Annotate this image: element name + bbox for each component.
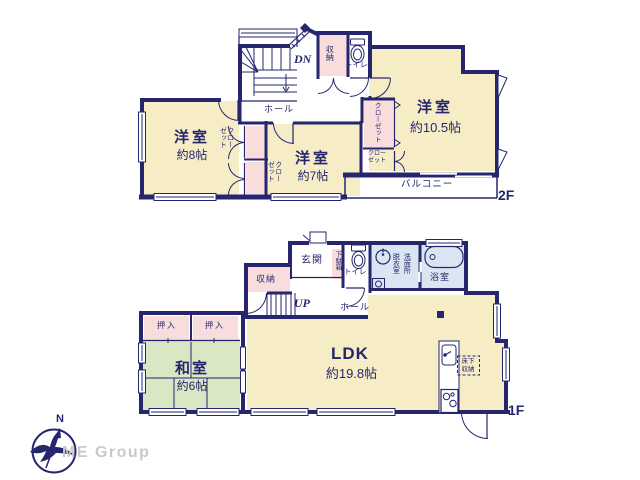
oshiire-a-label: 押入 (149, 321, 185, 330)
room7-size: 約7帖 (283, 170, 343, 184)
room105-name: 洋室 (400, 99, 470, 116)
entrance-label: 玄関 (301, 255, 323, 267)
changing-room-label: 脱衣室 (392, 253, 399, 281)
underfloor-label: 床下収納 (461, 358, 476, 374)
closet-10a-label: クローゼット (373, 102, 380, 146)
room8-size: 約8帖 (152, 149, 232, 163)
hall-1f: ホール (340, 302, 370, 312)
ldk-name: LDK (322, 344, 378, 364)
hall-2f: ホール (264, 104, 294, 114)
floor2-label: 2F (498, 187, 514, 203)
stairs-dn: DN (294, 53, 311, 67)
toilet-1f: トイレ (344, 268, 367, 277)
stairs-1f (267, 293, 295, 316)
stairs-2f (241, 47, 297, 96)
floor-plan-linework (0, 0, 640, 480)
bathroom-label: 浴室 (430, 272, 450, 282)
washitsu-size: 約6帖 (167, 380, 217, 394)
washroom-label: 洗面所 (403, 253, 410, 281)
floor-plan: 洋室 約8帖 洋室 約7帖 洋室 約10.5帖 ホール 収納 トイレ DN クロ… (0, 0, 640, 480)
room105-size: 約10.5帖 (398, 121, 473, 136)
closet-8b-label: クローゼット (267, 161, 282, 184)
toilet-2f: トイレ (345, 61, 368, 70)
ldk-size: 約19.8帖 (314, 367, 389, 382)
toilet-icon-2f (351, 39, 365, 63)
closet-10b-label: クローゼット (366, 151, 388, 165)
me-group-logo: ME Group (62, 444, 150, 462)
storage-1f: 収納 (256, 274, 276, 284)
shoe-cabinet-label: 下駄箱 (333, 251, 340, 277)
closet-8a-label: クローゼット (219, 127, 234, 150)
stairs-up: UP (294, 297, 310, 311)
balcony-label: バルコニー (401, 180, 453, 191)
toilet-icon-1f (352, 245, 366, 269)
oshiire-b-label: 押入 (197, 321, 233, 330)
kitchen-counter (439, 341, 480, 413)
room7-name: 洋室 (283, 150, 343, 167)
sink-icon (373, 249, 391, 290)
floor1-label: 1F (508, 402, 524, 418)
storage-2f: 収納 (325, 45, 333, 69)
bathtub-icon (425, 247, 463, 268)
compass-north-label: N (56, 413, 64, 426)
washitsu-name: 和室 (167, 360, 217, 377)
